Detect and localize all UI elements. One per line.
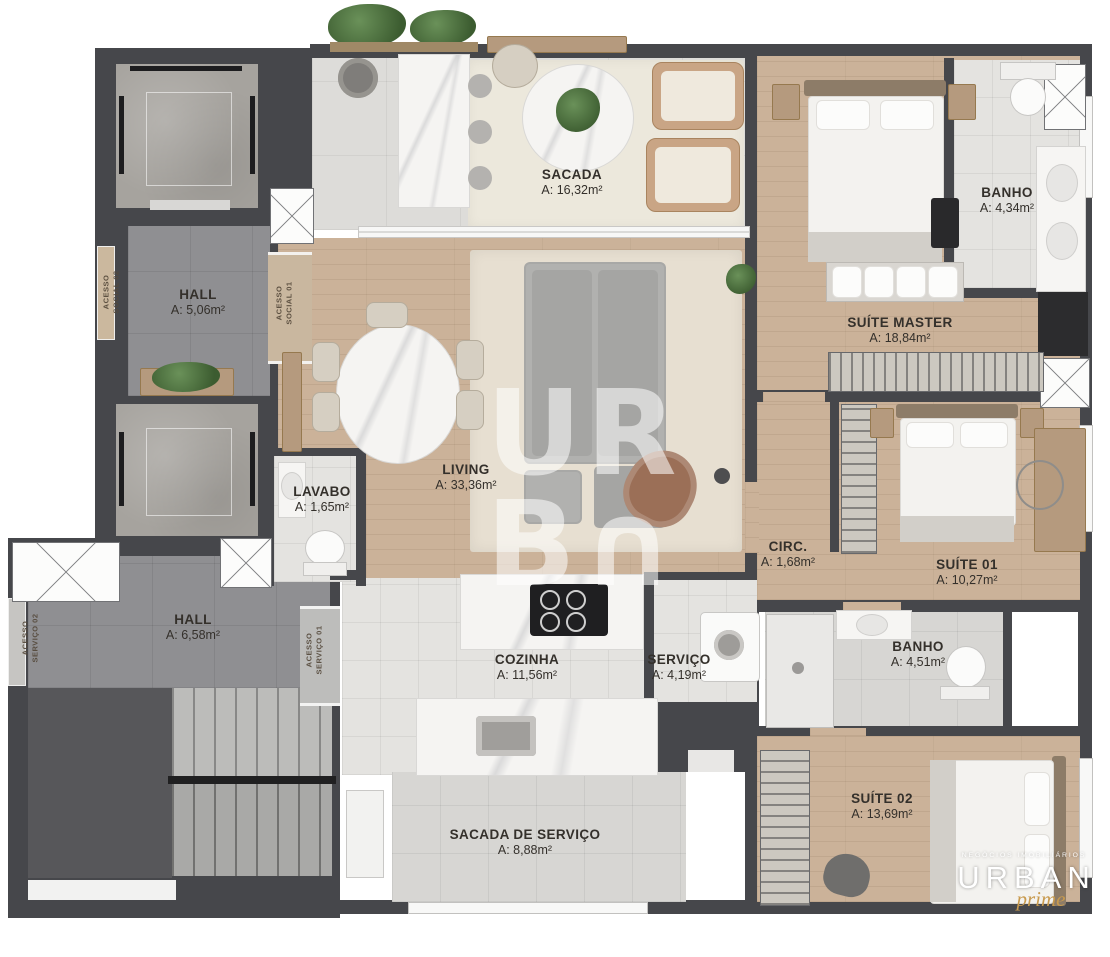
banho-master-sink-2 (1046, 222, 1078, 260)
room-name: CIRC. (761, 539, 815, 554)
access-label-servico-01: ACESSO SERVIÇO 01 (304, 625, 324, 674)
room-area: A: 4,19m² (647, 668, 710, 682)
lavabo-toilet-tank (303, 562, 347, 576)
wall-banho-02-right (1003, 612, 1012, 730)
room-label-sacada-servico: SACADA DE SERVIÇO A: 8,88m² (450, 827, 601, 857)
elevator-1-rail-top (130, 66, 242, 71)
elevator-1-rail-left (119, 96, 124, 174)
stairs-bottom-strip (28, 880, 176, 900)
room-name: SACADA DE SERVIÇO (450, 827, 601, 842)
room-area: A: 8,88m² (450, 843, 601, 857)
sacada-armchair-1 (652, 62, 744, 130)
stairs-lower-flight (172, 784, 332, 876)
room-area: A: 13,69m² (851, 807, 913, 821)
bench-cushion-1 (832, 266, 862, 298)
bed-suite-master (804, 80, 946, 268)
banho-02-sink (856, 614, 888, 636)
kitchen-sink (476, 716, 536, 756)
opening-living-circ (745, 482, 759, 553)
room-area: A: 1,68m² (761, 555, 815, 569)
dining-chair-1 (312, 342, 340, 382)
wardrobe-suite02 (760, 750, 810, 906)
banho-02-toilet-tank (940, 686, 990, 700)
room-label-banho-02: BANHO A: 4,51m² (891, 639, 945, 669)
elevator-1-rail-right (250, 96, 255, 174)
sideboard-living (282, 352, 302, 452)
sacada-chair (492, 44, 538, 88)
room-area: A: 18,84m² (847, 331, 952, 345)
shaft-dark-right (1038, 292, 1088, 356)
room-name: SERVIÇO (647, 652, 710, 667)
wall-suite01-bottom (757, 600, 1090, 612)
banho-master-toilet-bowl (1010, 78, 1046, 116)
window-sacada-servico (408, 902, 648, 914)
room-label-banho-master: BANHO A: 4,34m² (980, 185, 1034, 215)
room-name: SUÍTE MASTER (847, 315, 952, 330)
dining-chair-4 (456, 390, 484, 430)
nightstand-suite01-left (870, 408, 894, 438)
logo-tagline: NEGÓCIOS IMOBILIÁRIOS (952, 852, 1096, 859)
bench-cushion-4 (928, 266, 958, 298)
shaft-xbox-hall-social (270, 188, 314, 244)
room-label-circ: CIRC. A: 1,68m² (761, 539, 815, 569)
washing-machine-door (714, 630, 744, 660)
kitchen-sink-counter (416, 698, 658, 776)
room-area: A: 10,27m² (936, 573, 998, 587)
room-name: HALL (171, 287, 225, 302)
stair-landing-floor (28, 688, 172, 878)
shaft-xbox-mid (220, 538, 272, 588)
wall-lavabo-top (266, 448, 366, 456)
dining-chair-3 (456, 340, 484, 380)
room-name: LAVABO (293, 484, 350, 499)
access-label-servico-02: ACESSO SERVIÇO 02 (20, 613, 40, 662)
door-gap-suite02 (810, 728, 866, 736)
room-area: A: 5,06m² (171, 303, 225, 317)
room-name: COZINHA (495, 652, 559, 667)
stairs-divider (168, 776, 336, 784)
elevator-1-door (150, 200, 230, 210)
showerhead-banho-02 (792, 662, 804, 674)
room-name: BANHO (980, 185, 1034, 200)
wall-circ-suite01 (830, 402, 839, 552)
dining-chair-2 (312, 392, 340, 432)
elevator-1-frame (146, 92, 232, 186)
room-area: A: 11,56m² (495, 668, 559, 682)
sacada-railing (358, 226, 750, 238)
sacada-stool-1 (468, 74, 492, 98)
planter-plant-top-2 (410, 10, 476, 46)
room-area: A: 6,58m² (166, 628, 220, 642)
room-name: SUÍTE 01 (936, 557, 998, 572)
chair-suite01 (1016, 460, 1064, 510)
sacada-stool-3 (468, 166, 492, 190)
dining-table (336, 324, 460, 464)
banho-02-toilet-bowl (946, 646, 986, 688)
wardrobe-suite-master (828, 352, 1044, 392)
sacada-stool-2 (468, 120, 492, 144)
room-name: SACADA (541, 167, 602, 182)
urbn-watermark: UR B∩ (486, 378, 681, 600)
room-label-suite-master: SUÍTE MASTER A: 18,84m² (847, 315, 952, 345)
bench-cushion-2 (864, 266, 894, 298)
elevator-2-frame (146, 428, 232, 516)
room-area: A: 1,65m² (293, 500, 350, 514)
elevator-2-rail-right (250, 432, 255, 506)
sacada-grill-sink (338, 58, 378, 98)
bench-cushion-3 (896, 266, 926, 298)
room-label-cozinha: COZINHA A: 11,56m² (495, 652, 559, 682)
sacada-island-counter (398, 54, 470, 208)
door-gap-suite-master (763, 392, 825, 402)
cooktop-burner-3 (540, 612, 560, 632)
urban-prime-logo: NEGÓCIOS IMOBILIÁRIOS URBAN prime (952, 852, 1096, 912)
door-sacada-servico-left (346, 790, 384, 878)
room-area: A: 4,51m² (891, 655, 945, 669)
access-label-social-01: ACESSO SOCIAL 01 (274, 281, 294, 324)
room-area: A: 4,34m² (980, 201, 1034, 215)
shaft-xbox-left (12, 542, 120, 602)
nightstand-master-left (772, 84, 800, 120)
room-label-hall-social: HALL A: 5,06m² (171, 287, 225, 317)
room-label-servico: SERVIÇO A: 4,19m² (647, 652, 710, 682)
shaft-xbox-right-mid (1040, 358, 1090, 408)
room-label-sacada: SACADA A: 16,32m² (541, 167, 602, 197)
banho-master-sink-1 (1046, 164, 1078, 202)
speaker-suite-master (931, 198, 959, 248)
room-name: HALL (166, 612, 220, 627)
access-label-social-02: ACESSO SOCIAL 02 (101, 270, 121, 313)
room-name: SUÍTE 02 (851, 791, 913, 806)
floor-plan: SACADA A: 16,32m² HALL A: 5,06m² BANHO A… (0, 0, 1110, 957)
room-label-hall-servico: HALL A: 6,58m² (166, 612, 220, 642)
nightstand-master-right (948, 84, 976, 120)
lavabo-toilet-bowl (305, 530, 345, 566)
door-servico-sacada (688, 750, 734, 772)
room-area: A: 16,32m² (541, 183, 602, 197)
elevator-2-rail-left (119, 432, 124, 506)
room-name: BANHO (891, 639, 945, 654)
bed-suite01 (896, 404, 1018, 550)
cooktop-burner-4 (566, 612, 586, 632)
room-label-suite02: SUÍTE 02 A: 13,69m² (851, 791, 913, 821)
wall-lavabo-right (356, 448, 366, 586)
room-label-lavabo: LAVABO A: 1,65m² (293, 484, 350, 514)
planter-box-top (330, 42, 478, 52)
floor-lamp (714, 468, 730, 484)
room-label-suite01: SUÍTE 01 A: 10,27m² (936, 557, 998, 587)
sacada-armchair-2 (646, 138, 740, 212)
dining-chair-5 (366, 302, 408, 328)
